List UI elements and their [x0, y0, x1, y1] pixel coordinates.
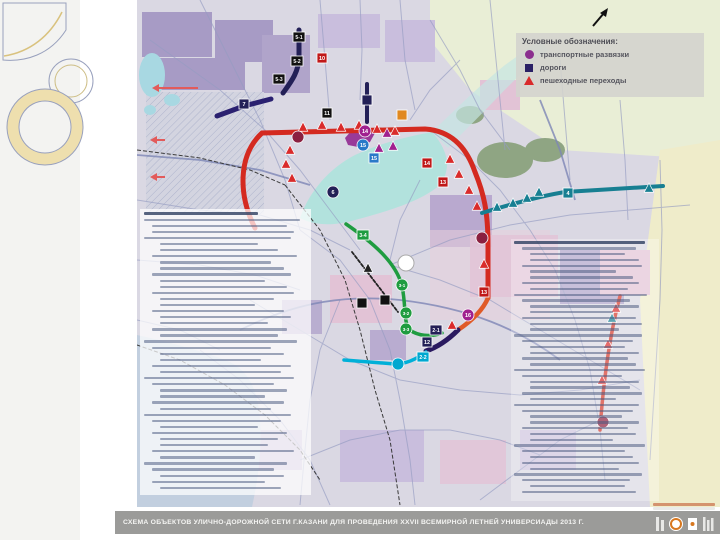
legend-label: дороги [540, 63, 566, 72]
interchange-marker-label: 3-2 [403, 311, 410, 316]
tiny-text-line [160, 243, 258, 245]
tiny-text-line [160, 298, 274, 300]
stadium-circle [398, 255, 414, 271]
interchange-marker-label: 14 [362, 129, 369, 135]
interchange-marker-label: 16 [465, 313, 471, 319]
legend-item-roads: дороги [522, 62, 698, 73]
tiny-text-line [144, 414, 291, 416]
tiny-text-line [514, 294, 647, 296]
tiny-text-line [530, 253, 625, 255]
tiny-text-line [160, 371, 281, 373]
tiny-text-line [522, 427, 628, 429]
tiny-text-line [522, 299, 630, 301]
tiny-text-line [152, 468, 274, 470]
left-annotation-panel [140, 209, 311, 495]
road-marker-square [397, 110, 407, 120]
tiny-text-line [522, 410, 633, 412]
road-marker-label: 5-3 [275, 77, 282, 83]
tiny-text-line [160, 456, 255, 458]
tiny-text-line [160, 316, 291, 318]
tiny-text-line [514, 404, 639, 406]
tiny-text-line [160, 334, 278, 336]
tiny-text-line [152, 481, 265, 483]
road-marker-label: 12 [424, 340, 430, 346]
tiny-text-line [160, 286, 287, 288]
tiny-text-line [152, 292, 294, 294]
tiny-text-line [522, 340, 633, 342]
tiny-text-line [152, 432, 287, 434]
tiny-text-line [144, 340, 297, 342]
road-marker-label: 14 [424, 161, 431, 167]
road-marker-label: 10 [319, 56, 325, 62]
tiny-text-line [530, 456, 633, 458]
tiny-text-line [530, 363, 636, 365]
tiny-text-line [530, 439, 613, 441]
tiny-text-line [530, 381, 639, 383]
road-marker-label: 13 [481, 290, 487, 296]
map-legend: Условные обозначения: транспортные развя… [516, 33, 704, 97]
road-marker-label: 3-4 [359, 233, 366, 239]
road-marker-label: 11 [324, 111, 330, 117]
tiny-text-line [160, 267, 284, 269]
tiny-text-line [514, 334, 642, 336]
slide-title-bar: СХЕМА ОБЪЕКТОВ УЛИЧНО-ДОРОЖНОЙ СЕТИ Г.КА… [115, 511, 720, 534]
tiny-text-line [514, 473, 642, 475]
interchange-marker-label: 6 [331, 190, 334, 196]
organization-logos [652, 514, 718, 534]
tiny-text-line [530, 415, 622, 417]
legend-item-interchanges: транспортные развязки [522, 49, 698, 60]
tiny-text-line [152, 383, 274, 385]
legend-title: Условные обозначения: [522, 37, 698, 46]
tiny-text-line [522, 247, 636, 249]
tiny-text-line [522, 491, 636, 493]
tiny-text-line [530, 386, 630, 388]
tiny-text-line [152, 401, 284, 403]
interchange-marker-label: 3-3 [403, 327, 410, 332]
tiny-text-line [522, 462, 639, 464]
tiny-text-line [152, 420, 281, 422]
tiny-text-line [160, 280, 265, 282]
road-marker-square [362, 95, 372, 105]
road-marker-label: 15 [371, 156, 377, 162]
tiny-text-line [152, 347, 271, 349]
tiny-text-line [530, 270, 616, 272]
tiny-text-line [522, 479, 630, 481]
tiny-text-line [530, 346, 625, 348]
road-marker-label: 5-1 [295, 35, 302, 41]
tiny-text-line [522, 450, 625, 452]
tiny-text-line [530, 305, 639, 307]
tiny-text-line [530, 259, 639, 261]
tiny-text-line [522, 357, 628, 359]
interchange-marker-circle [292, 131, 304, 143]
tiny-text-line [144, 219, 300, 221]
tiny-text-line [522, 317, 636, 319]
tiny-text-line [152, 310, 284, 312]
tiny-text-line [514, 444, 645, 446]
tiny-text-line [530, 421, 639, 423]
tiny-text-line [530, 323, 642, 325]
logo-cluster [652, 503, 718, 534]
slide-caption: СХЕМА ОБЪЕКТОВ УЛИЧНО-ДОРОЖНОЙ СЕТИ Г.КА… [123, 519, 584, 526]
tiny-text-line [522, 282, 639, 284]
tiny-text-line [152, 231, 294, 233]
tiny-text-line [160, 359, 261, 361]
tiny-text-line [152, 328, 287, 330]
tiny-text-line [514, 241, 645, 244]
tiny-text-line [160, 444, 268, 446]
credit-text-line [653, 503, 715, 506]
tiny-text-line [530, 276, 633, 278]
tiny-text-line [522, 392, 642, 394]
tiny-text-line [530, 398, 616, 400]
tiny-text-line [160, 438, 278, 440]
legend-label: пешеходные переходы [540, 76, 626, 85]
tiny-text-line [522, 265, 642, 267]
road-marker-square [357, 298, 367, 308]
tiny-text-line [160, 426, 258, 428]
tiny-text-line [514, 369, 645, 371]
tiny-text-line [530, 433, 636, 435]
tiny-text-line [160, 395, 265, 397]
tiny-text-line [160, 475, 284, 477]
tiny-text-line [144, 462, 287, 464]
interchange-marker-label: 3-1 [399, 283, 406, 288]
tiny-text-line [144, 237, 291, 239]
tiny-text-line [160, 408, 271, 410]
interchange-marker-circle [476, 232, 488, 244]
credit-text-line [653, 507, 715, 510]
tiny-text-line [160, 322, 268, 324]
tiny-text-line [152, 225, 287, 227]
tiny-text-line [152, 255, 297, 257]
tiny-text-line [530, 328, 619, 330]
right-annotation-panel [511, 239, 659, 501]
tiny-text-line [152, 365, 291, 367]
presentation-slide: 5-15-25-3710111514131342-1122-23-4 14156… [0, 0, 720, 540]
tiny-text-line [160, 487, 281, 489]
tiny-text-line [530, 288, 628, 290]
road-marker-label: 5-2 [293, 59, 300, 65]
interchange-marker-circle [392, 358, 404, 370]
road-marker-label: 2-2 [419, 355, 426, 361]
tiny-text-line [160, 261, 271, 263]
interchange-marker-label: 15 [360, 143, 366, 149]
road-marker-square [380, 295, 390, 305]
legend-item-crossings: пешеходные переходы [522, 75, 698, 86]
tiny-text-line [522, 375, 622, 377]
tiny-text-line [530, 468, 619, 470]
tiny-text-line [152, 450, 294, 452]
tiny-text-line [160, 389, 287, 391]
tiny-text-line [144, 212, 258, 215]
tiny-text-line [144, 377, 294, 379]
tiny-text-line [530, 352, 639, 354]
road-marker-label: 13 [440, 180, 446, 186]
tiny-text-line [152, 273, 291, 275]
road-square-icon [522, 64, 536, 72]
tiny-text-line [160, 353, 284, 355]
crossing-triangle-icon [522, 76, 536, 85]
interchange-circle-icon [522, 50, 536, 59]
road-marker-label: 7 [242, 102, 245, 108]
legend-label: транспортные развязки [540, 50, 629, 59]
tiny-text-line [160, 249, 278, 251]
road-marker-label: 2-1 [432, 328, 439, 334]
tiny-text-line [160, 304, 255, 306]
tiny-text-line [530, 485, 625, 487]
tiny-text-line [530, 311, 613, 313]
